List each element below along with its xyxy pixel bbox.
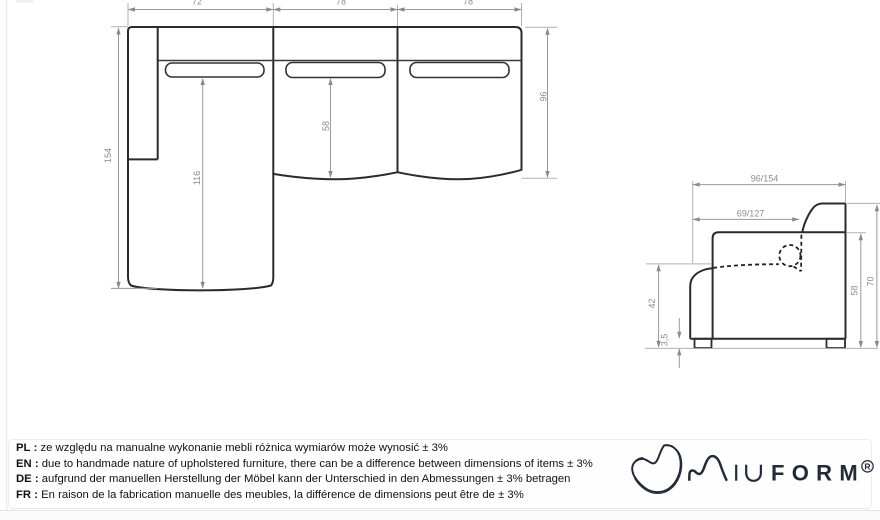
svg-text:3,5: 3,5 (659, 334, 669, 347)
svg-text:72: 72 (192, 0, 202, 7)
svg-text:96/154: 96/154 (751, 174, 779, 184)
svg-text:R: R (864, 462, 870, 472)
svg-text:78: 78 (463, 0, 473, 7)
svg-text:116: 116 (192, 171, 202, 185)
svg-text:70: 70 (866, 276, 876, 286)
svg-text:154: 154 (103, 148, 113, 163)
svg-text:58: 58 (321, 121, 331, 131)
svg-text:69/127: 69/127 (737, 208, 765, 218)
svg-text:42: 42 (647, 298, 657, 308)
svg-text:96: 96 (539, 91, 549, 101)
svg-text:58: 58 (850, 285, 860, 295)
svg-text:FORM: FORM (771, 460, 865, 485)
svg-text:78: 78 (336, 0, 346, 7)
